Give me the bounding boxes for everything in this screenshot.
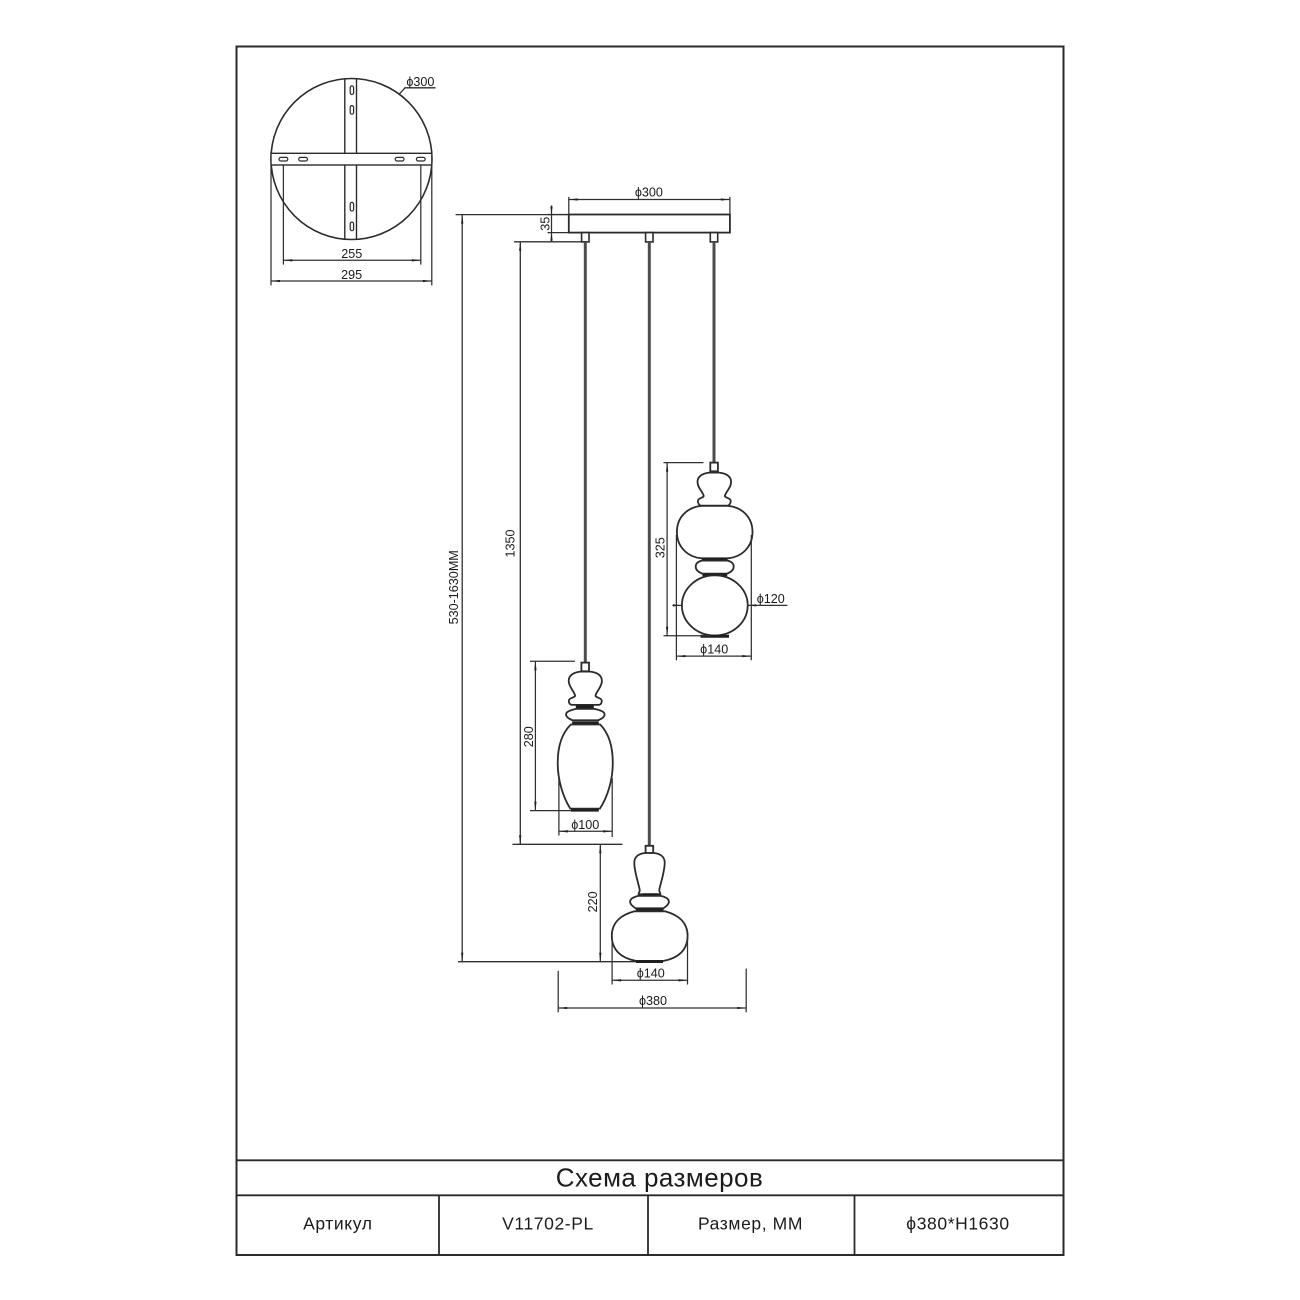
svg-text:280: 280 — [522, 726, 536, 747]
svg-text:ϕ100: ϕ100 — [571, 818, 599, 832]
svg-text:255: 255 — [341, 247, 362, 261]
svg-text:ϕ120: ϕ120 — [757, 592, 785, 606]
svg-text:ϕ140: ϕ140 — [700, 642, 728, 656]
svg-text:ϕ140: ϕ140 — [637, 966, 665, 980]
svg-text:295: 295 — [341, 268, 362, 282]
svg-text:Размер, ММ: Размер, ММ — [698, 1213, 803, 1233]
svg-text:ϕ380: ϕ380 — [639, 994, 667, 1008]
svg-text:V11702-PL: V11702-PL — [502, 1213, 594, 1233]
svg-text:ϕ300: ϕ300 — [635, 186, 663, 200]
svg-text:Артикул: Артикул — [303, 1213, 372, 1233]
svg-text:325: 325 — [654, 537, 668, 558]
svg-text:ϕ300: ϕ300 — [406, 75, 434, 89]
svg-text:530-1630MM: 530-1630MM — [447, 550, 461, 624]
svg-text:ϕ380*H1630: ϕ380*H1630 — [906, 1213, 1009, 1233]
svg-text:Схема размеров: Схема размеров — [556, 1162, 763, 1192]
svg-text:35: 35 — [538, 217, 552, 231]
svg-text:220: 220 — [586, 891, 600, 912]
svg-text:1350: 1350 — [503, 529, 517, 557]
